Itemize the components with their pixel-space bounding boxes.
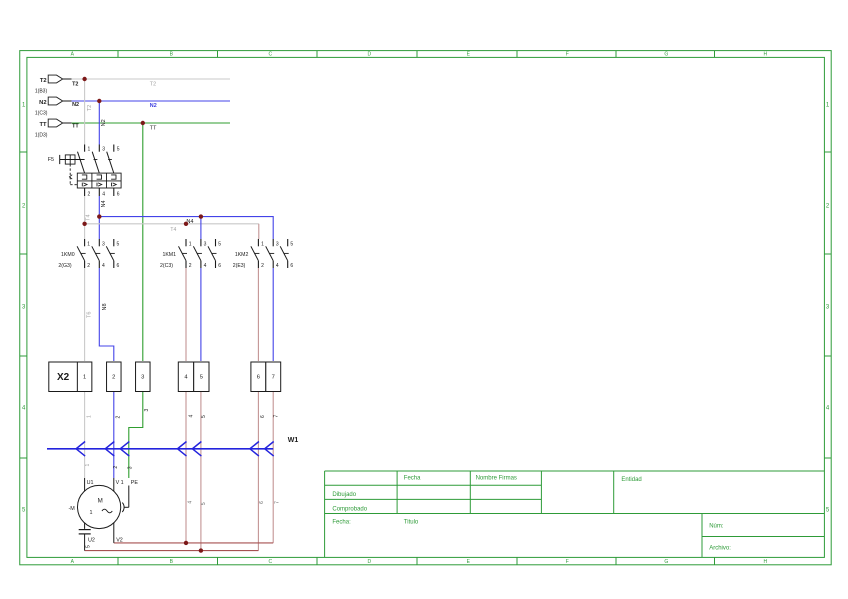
svg-text:5: 5 (22, 508, 26, 514)
svg-text:1(D3): 1(D3) (35, 133, 48, 139)
svg-text:3: 3 (22, 305, 26, 311)
svg-text:TT: TT (150, 126, 157, 132)
svg-text:2(G3): 2(G3) (58, 263, 72, 269)
svg-text:2: 2 (113, 466, 119, 469)
svg-text:TT: TT (40, 122, 48, 128)
svg-text:6: 6 (117, 263, 120, 269)
svg-text:Nombre Firmas: Nombre Firmas (476, 476, 517, 482)
svg-text:U2: U2 (88, 538, 95, 544)
svg-text:4: 4 (102, 191, 105, 197)
svg-text:3: 3 (102, 147, 105, 153)
svg-text:3: 3 (204, 241, 207, 247)
svg-text:5: 5 (218, 241, 221, 247)
svg-text:D: D (367, 52, 371, 58)
svg-text:Entidad: Entidad (621, 477, 641, 483)
svg-text:T2: T2 (150, 82, 156, 88)
svg-text:1: 1 (826, 103, 830, 109)
svg-text:7: 7 (274, 501, 280, 504)
svg-text:1: 1 (86, 415, 92, 418)
svg-text:4: 4 (188, 501, 194, 504)
svg-text:T6: T6 (86, 312, 92, 318)
svg-text:2(C3): 2(C3) (160, 263, 173, 269)
svg-text:5: 5 (290, 241, 293, 247)
svg-text:H: H (763, 52, 767, 58)
svg-text:1: 1 (87, 241, 90, 247)
svg-text:PE: PE (131, 480, 139, 486)
svg-text:T2: T2 (87, 105, 93, 111)
svg-text:B: B (170, 559, 174, 565)
svg-text:2: 2 (261, 263, 264, 269)
svg-text:6: 6 (259, 501, 265, 504)
svg-text:F5: F5 (48, 157, 54, 163)
svg-text:1: 1 (90, 510, 93, 516)
svg-text:G: G (664, 559, 668, 565)
svg-text:7: 7 (274, 415, 280, 418)
svg-text:1KM0: 1KM0 (61, 252, 75, 258)
svg-text:T2: T2 (40, 78, 47, 84)
svg-text:5: 5 (117, 147, 120, 153)
svg-text:N2: N2 (150, 103, 157, 109)
svg-text:U1: U1 (87, 480, 94, 486)
svg-text:A: A (71, 559, 75, 565)
svg-text:2: 2 (88, 191, 91, 197)
svg-text:4: 4 (276, 263, 279, 269)
svg-text:3: 3 (102, 241, 105, 247)
svg-text:1: 1 (88, 147, 91, 153)
svg-text:5: 5 (117, 241, 120, 247)
svg-text:E: E (467, 559, 471, 565)
svg-text:Dibujado: Dibujado (332, 492, 356, 498)
svg-text:-M: -M (69, 506, 76, 512)
svg-text:1: 1 (189, 241, 192, 247)
svg-text:N2: N2 (101, 119, 107, 126)
svg-text:4: 4 (188, 415, 194, 418)
svg-text:T4: T4 (170, 227, 176, 233)
svg-text:Titulo: Titulo (404, 519, 419, 525)
svg-text:4: 4 (826, 406, 830, 412)
svg-text:N4: N4 (101, 200, 107, 207)
svg-text:3: 3 (127, 466, 133, 469)
svg-text:5: 5 (201, 502, 207, 505)
svg-text:4: 4 (22, 406, 26, 412)
svg-text:6: 6 (257, 374, 260, 380)
svg-text:N2: N2 (72, 102, 79, 108)
svg-text:2: 2 (112, 374, 115, 380)
svg-text:D: D (367, 559, 371, 565)
svg-text:N2: N2 (39, 100, 46, 106)
svg-text:5: 5 (85, 545, 91, 548)
svg-text:X2: X2 (57, 372, 70, 383)
svg-text:2(E3): 2(E3) (233, 263, 246, 269)
svg-text:Núm:: Núm: (709, 524, 724, 530)
svg-text:V2: V2 (116, 538, 123, 544)
svg-text:T4: T4 (86, 214, 92, 220)
svg-text:5: 5 (826, 508, 830, 514)
svg-text:6: 6 (218, 263, 221, 269)
svg-text:1: 1 (85, 464, 91, 467)
svg-text:7: 7 (272, 374, 275, 380)
svg-text:1KM2: 1KM2 (235, 252, 249, 258)
svg-text:4: 4 (102, 263, 105, 269)
svg-text:2: 2 (826, 204, 830, 210)
svg-text:1(B3): 1(B3) (35, 89, 48, 95)
svg-text:V 1: V 1 (116, 480, 124, 486)
svg-text:4: 4 (204, 263, 207, 269)
svg-text:A: A (71, 52, 75, 58)
svg-text:3: 3 (826, 305, 830, 311)
svg-text:C: C (268, 52, 272, 58)
svg-text:F: F (566, 52, 569, 58)
svg-text:6: 6 (117, 191, 120, 197)
svg-text:W1: W1 (288, 437, 299, 444)
svg-text:F: F (566, 559, 569, 565)
svg-text:6: 6 (260, 415, 266, 418)
svg-text:B: B (170, 52, 174, 58)
svg-text:TT: TT (72, 124, 79, 130)
svg-text:5: 5 (201, 415, 207, 418)
svg-text:T2: T2 (72, 81, 78, 87)
svg-text:2: 2 (22, 204, 26, 210)
svg-text:N8: N8 (102, 303, 108, 310)
svg-text:E: E (467, 52, 471, 58)
svg-text:Fecha: Fecha (404, 476, 421, 482)
svg-text:6: 6 (290, 263, 293, 269)
svg-text:5: 5 (200, 374, 203, 380)
svg-text:2: 2 (116, 416, 122, 419)
svg-text:H: H (763, 559, 767, 565)
svg-text:Archivo:: Archivo: (709, 545, 731, 551)
svg-text:1: 1 (83, 374, 86, 380)
svg-text:Fecha:: Fecha: (332, 519, 351, 525)
svg-text:1KM1: 1KM1 (162, 252, 176, 258)
svg-text:1: 1 (261, 241, 264, 247)
svg-text:3: 3 (144, 409, 150, 412)
svg-text:3: 3 (141, 374, 144, 380)
svg-text:Comprobado: Comprobado (332, 506, 367, 512)
svg-text:2: 2 (189, 263, 192, 269)
svg-text:2: 2 (87, 263, 90, 269)
svg-text:3: 3 (276, 241, 279, 247)
svg-text:1: 1 (22, 103, 26, 109)
svg-text:1(C3): 1(C3) (35, 111, 48, 117)
svg-text:G: G (664, 52, 668, 58)
svg-text:C: C (268, 559, 272, 565)
svg-text:M: M (98, 498, 103, 505)
